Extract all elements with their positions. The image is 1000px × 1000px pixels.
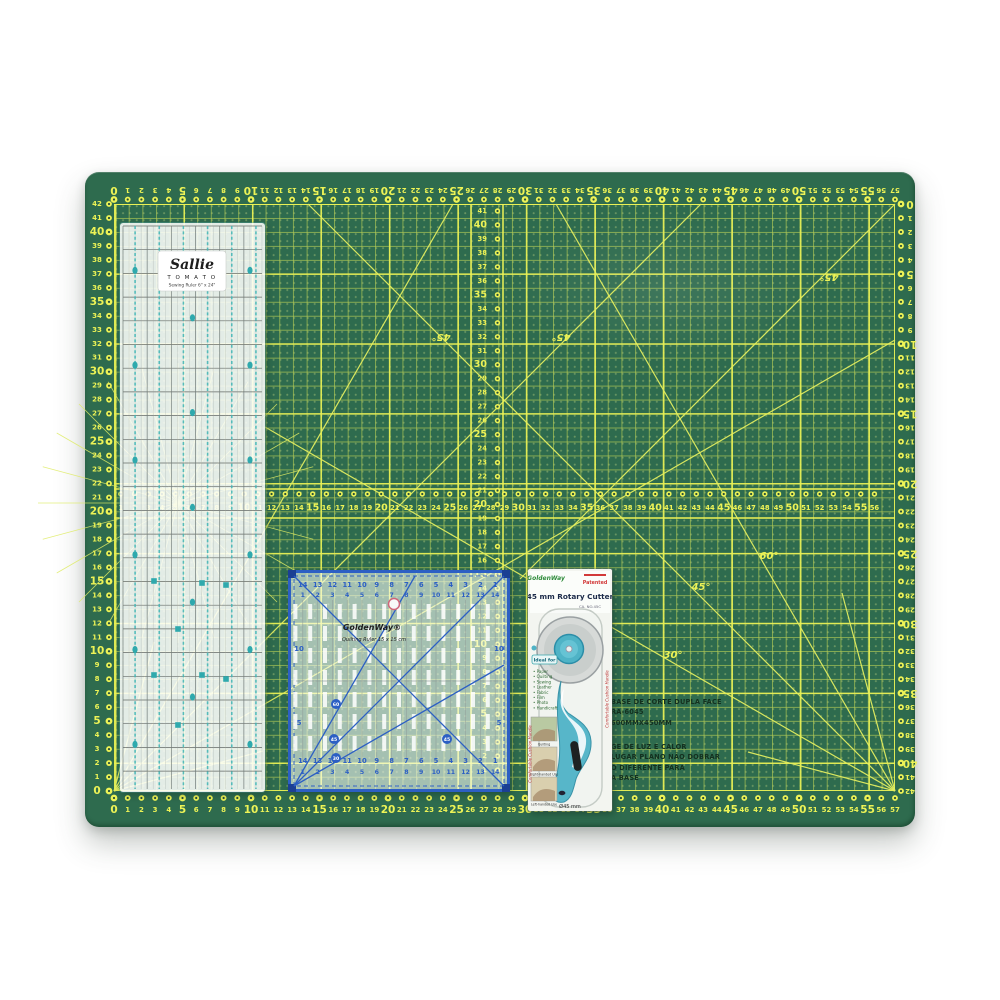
square-number-top-desc: 11 [342, 581, 352, 589]
square-number-bottom-desc: 5 [434, 757, 439, 765]
thumbnail-photo [531, 717, 557, 741]
package-catalog-number: CA. NO.45C [579, 604, 601, 609]
ruler-teal-dot [247, 362, 252, 369]
square-number-top-desc: 12 [328, 581, 338, 589]
square-number-top-asc: 9 [419, 592, 423, 599]
mat-print-line: GE DE LUZ E CALOR [611, 742, 720, 752]
ruler-teal-dot [132, 741, 137, 748]
square-ruler-markings: 1411411321321231231141141051059696878778… [288, 570, 510, 792]
square-number-top-desc: 7 [404, 581, 409, 589]
ruler-teal-square [175, 626, 181, 632]
square-angle-dot-label: 30 [333, 756, 339, 762]
long-ruler-brand-script: Sallie [170, 257, 214, 273]
square-number-bottom-desc: 9 [374, 757, 379, 765]
ruler-teal-dot [132, 362, 137, 369]
ruler-teal-square [175, 722, 181, 728]
ruler-teal-dot [190, 599, 195, 606]
ideal-for-title: Ideal for [534, 658, 557, 664]
square-number-top-asc: 4 [345, 592, 350, 599]
square-number-top-desc: 10 [357, 581, 367, 589]
square-number-top-asc: 10 [432, 592, 441, 599]
square-number-bottom-asc: 14 [491, 769, 500, 776]
square-number-top-desc: 4 [448, 581, 453, 589]
square-number-top-asc: 12 [461, 592, 470, 599]
thumbnail-photo [531, 747, 557, 771]
square-side-label: 5 [297, 719, 302, 727]
square-number-bottom-desc: 3 [463, 757, 468, 765]
mat-print-line: O DIFERENTE PARA [611, 763, 720, 773]
blade-diameter-label: Ø45 mm [559, 803, 581, 810]
square-ruler-brand: GoldenWay® [343, 623, 401, 632]
square-number-top-desc: 13 [313, 581, 323, 589]
ruler-teal-square [199, 580, 205, 586]
ruler-teal-dot [132, 267, 137, 274]
square-number-bottom-asc: 5 [360, 769, 364, 776]
square-number-bottom-asc: 3 [330, 769, 334, 776]
ruler-teal-dot [190, 504, 195, 511]
long-quilting-ruler: SallieT O M A T OSewing Ruler 6" x 24" [120, 223, 265, 792]
square-number-bottom-asc: 8 [404, 769, 408, 776]
ruler-teal-dot [190, 409, 195, 416]
long-ruler-brand-caps: T O M A T O [166, 275, 216, 281]
square-number-bottom-asc: 13 [476, 769, 485, 776]
ruler-teal-dot [190, 314, 195, 321]
square-number-top-desc: 2 [478, 581, 483, 589]
mat-print-line: BASE DE CORTE DUPLA FACE [611, 697, 722, 707]
long-ruler-markings: SallieT O M A T OSewing Ruler 6" x 24" [120, 223, 265, 792]
teal-dot [532, 646, 537, 651]
square-ruler-subtitle: Quilting Ruler 15 x 15 cm [342, 637, 406, 643]
square-number-bottom-asc: 10 [432, 769, 441, 776]
package-patented-label: Patented [583, 580, 608, 586]
ruler-teal-dot [247, 456, 252, 463]
ruler-teal-dot [247, 646, 252, 653]
square-number-bottom-asc: 11 [446, 769, 455, 776]
square-number-bottom-desc: 7 [404, 757, 409, 765]
mat-print-line: LUGAR PLANO NÃO DOBRAR [611, 752, 720, 762]
square-number-bottom-desc: 6 [419, 757, 424, 765]
square-number-bottom-desc: 4 [448, 757, 453, 765]
square-number-bottom-desc: 11 [342, 757, 352, 765]
ruler-teal-square [151, 672, 157, 678]
square-side-label: 5 [497, 719, 502, 727]
square-number-top-asc: 3 [330, 592, 334, 599]
square-side-label: 10 [294, 645, 304, 653]
square-number-bottom-asc: 4 [345, 769, 350, 776]
square-number-bottom-asc: 9 [419, 769, 423, 776]
handle-button [559, 791, 566, 795]
square-number-bottom-desc: 2 [478, 757, 483, 765]
blade-rivet [566, 646, 572, 652]
square-number-top-desc: 3 [463, 581, 468, 589]
ruler-teal-dot [247, 741, 252, 748]
square-number-top-asc: 13 [476, 592, 485, 599]
square-number-bottom-desc: 1 [493, 757, 498, 765]
square-number-top-desc: 8 [389, 581, 394, 589]
square-number-bottom-asc: 2 [315, 769, 319, 776]
square-side-label: 10 [494, 645, 504, 653]
side-text-right: Comfortable Cushion Handle [605, 670, 610, 728]
mat-print-block-2: GE DE LUZ E CALOR LUGAR PLANO NÃO DOBRAR… [611, 742, 720, 784]
thumbnail-caption: Right-handed Use [530, 773, 559, 777]
thumbnail-caption: Quilting [538, 743, 550, 747]
square-angle-dot-label: 60 [333, 702, 339, 708]
mat-print-block-1: BASE DE CORTE DUPLA FACE RA-6045 600MMX4… [611, 697, 722, 728]
square-number-bottom-desc: 8 [389, 757, 394, 765]
ruler-teal-dot [247, 267, 252, 274]
square-number-top-asc: 6 [375, 592, 379, 599]
ruler-teal-dot [190, 693, 195, 700]
square-ruler-hole [389, 599, 400, 610]
square-number-bottom-asc: 6 [375, 769, 379, 776]
thumbnail-caption: Left-handed Use [531, 803, 557, 807]
rotary-cutter-graphics: GoldenWayPatented45 mm Rotary CutterCA. … [528, 569, 612, 811]
square-number-top-desc: 5 [434, 581, 439, 589]
package-brand: GoldenWay [528, 575, 566, 582]
square-number-top-asc: 1 [301, 592, 305, 599]
mat-print-line: RA-6045 [611, 707, 722, 717]
ruler-teal-dot [132, 456, 137, 463]
square-number-bottom-desc: 13 [313, 757, 323, 765]
square-number-top-desc: 9 [374, 581, 379, 589]
square-number-top-asc: 2 [315, 592, 319, 599]
square-number-top-asc: 5 [360, 592, 364, 599]
ruler-teal-dot [247, 551, 252, 558]
square-number-top-asc: 8 [404, 592, 408, 599]
side-text-left: Comfortable Cushion Handle [528, 725, 533, 783]
ideal-for-item: • Handicraft [533, 705, 558, 710]
square-number-bottom-asc: 12 [461, 769, 470, 776]
square-number-bottom-asc: 7 [389, 769, 393, 776]
square-angle-dot-label: 45 [331, 737, 337, 743]
ruler-teal-square [223, 582, 229, 588]
mat-print-line: A BASE [611, 773, 720, 783]
rotary-cutter-package: GoldenWayPatented45 mm Rotary CutterCA. … [528, 569, 612, 811]
square-angle-dot-label: 45 [444, 737, 450, 743]
square-number-bottom-desc: 10 [357, 757, 367, 765]
product-photo-scene: { "mat": { "green": "#2e6b4e", "grid_lin… [0, 0, 1000, 1000]
square-number-top-desc: 14 [298, 581, 308, 589]
square-number-top-asc: 14 [491, 592, 500, 599]
thumbnail-photo [531, 777, 557, 801]
square-number-bottom-asc: 1 [301, 769, 305, 776]
ruler-teal-square [199, 672, 205, 678]
ruler-teal-square [151, 578, 157, 584]
square-number-top-desc: 1 [493, 581, 498, 589]
square-number-top-desc: 6 [419, 581, 424, 589]
square-number-top-asc: 11 [446, 592, 455, 599]
ruler-teal-square [223, 676, 229, 682]
square-quilting-ruler: 1411411321321231231141141051059696878778… [288, 570, 510, 792]
long-ruler-subtitle: Sewing Ruler 6" x 24" [169, 283, 216, 289]
package-title: 45 mm Rotary Cutter [528, 592, 612, 601]
square-number-bottom-desc: 14 [298, 757, 308, 765]
mat-print-line: 600MMX450MM [611, 718, 722, 728]
ruler-teal-dot [132, 646, 137, 653]
ruler-teal-dot [132, 551, 137, 558]
